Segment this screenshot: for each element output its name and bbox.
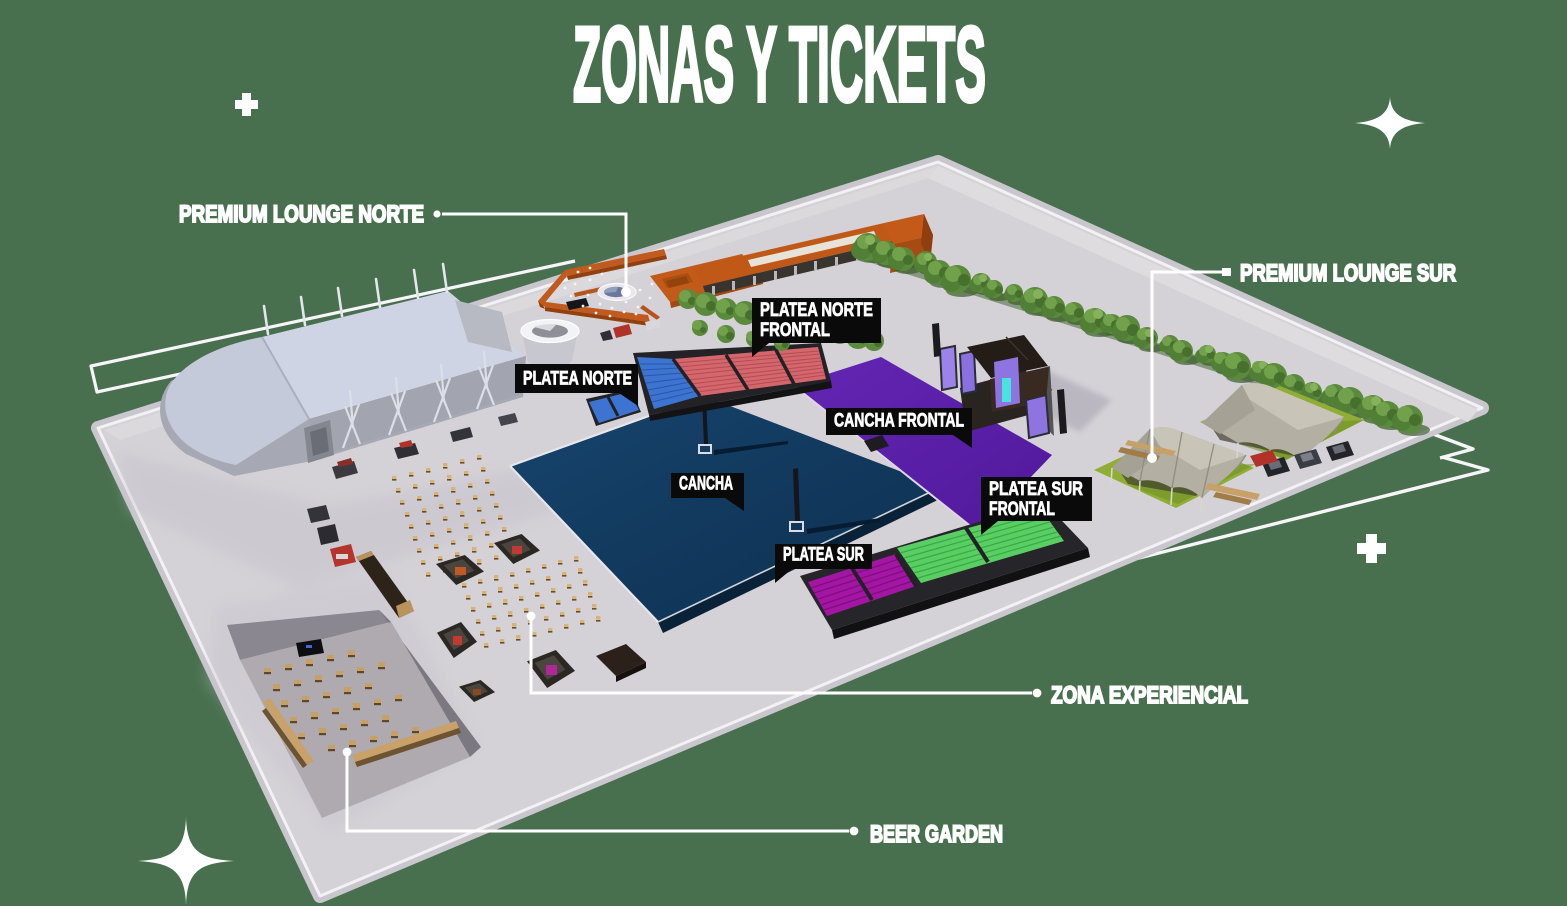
svg-text:ZONA EXPERIENCIAL: ZONA EXPERIENCIAL (1051, 682, 1248, 709)
svg-text:CANCHA: CANCHA (679, 473, 733, 495)
svg-text:FRONTAL: FRONTAL (989, 498, 1055, 520)
svg-text:PLATEA NORTE: PLATEA NORTE (523, 368, 632, 390)
svg-text:PREMIUM LOUNGE SUR: PREMIUM LOUNGE SUR (1240, 260, 1456, 287)
svg-text:CANCHA FRONTAL: CANCHA FRONTAL (834, 410, 964, 432)
svg-text:PLATEA NORTE: PLATEA NORTE (760, 299, 873, 321)
svg-text:FRONTAL: FRONTAL (760, 319, 830, 341)
svg-text:PREMIUM LOUNGE NORTE: PREMIUM LOUNGE NORTE (179, 201, 424, 228)
svg-text:PLATEA SUR: PLATEA SUR (783, 544, 864, 566)
svg-text:PLATEA SUR: PLATEA SUR (989, 478, 1083, 500)
svg-text:ZONAS Y TICKETS: ZONAS Y TICKETS (573, 4, 986, 124)
svg-text:BEER GARDEN: BEER GARDEN (870, 821, 1003, 848)
